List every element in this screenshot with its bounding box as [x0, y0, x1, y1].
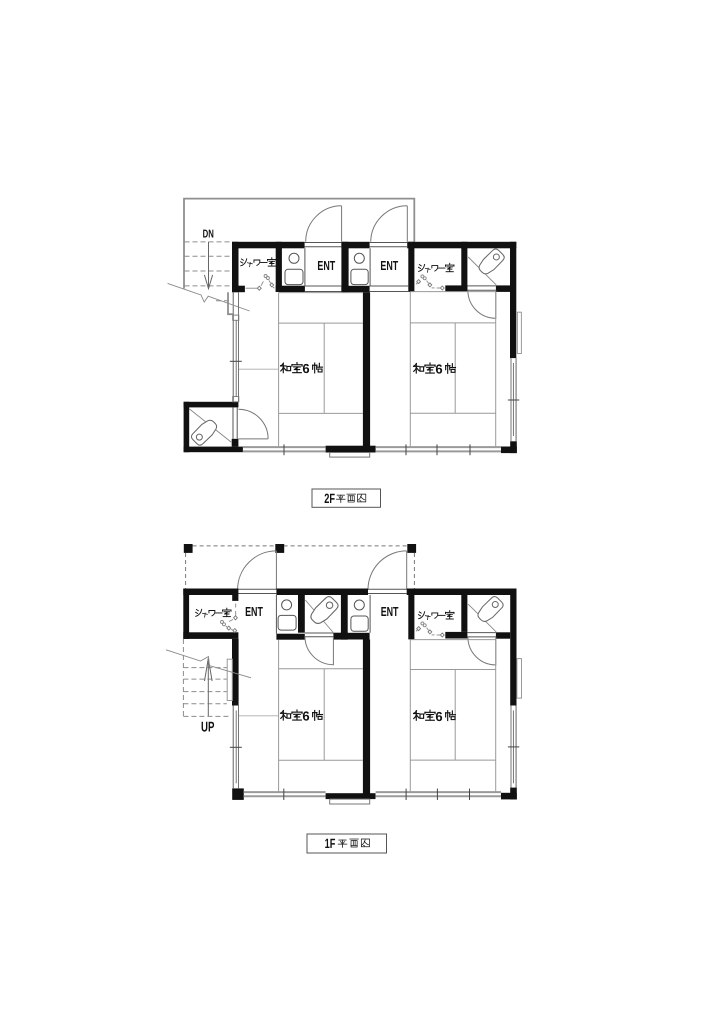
svg-text:ENT: ENT: [380, 258, 398, 273]
svg-text:UP: UP: [201, 720, 214, 736]
svg-text:1F: 1F: [325, 836, 336, 851]
svg-text:ENT: ENT: [381, 604, 399, 619]
svg-text:2F: 2F: [324, 491, 335, 506]
svg-text:ENT: ENT: [317, 258, 335, 273]
svg-text:ENT: ENT: [245, 604, 263, 619]
svg-text:DN: DN: [203, 229, 214, 241]
